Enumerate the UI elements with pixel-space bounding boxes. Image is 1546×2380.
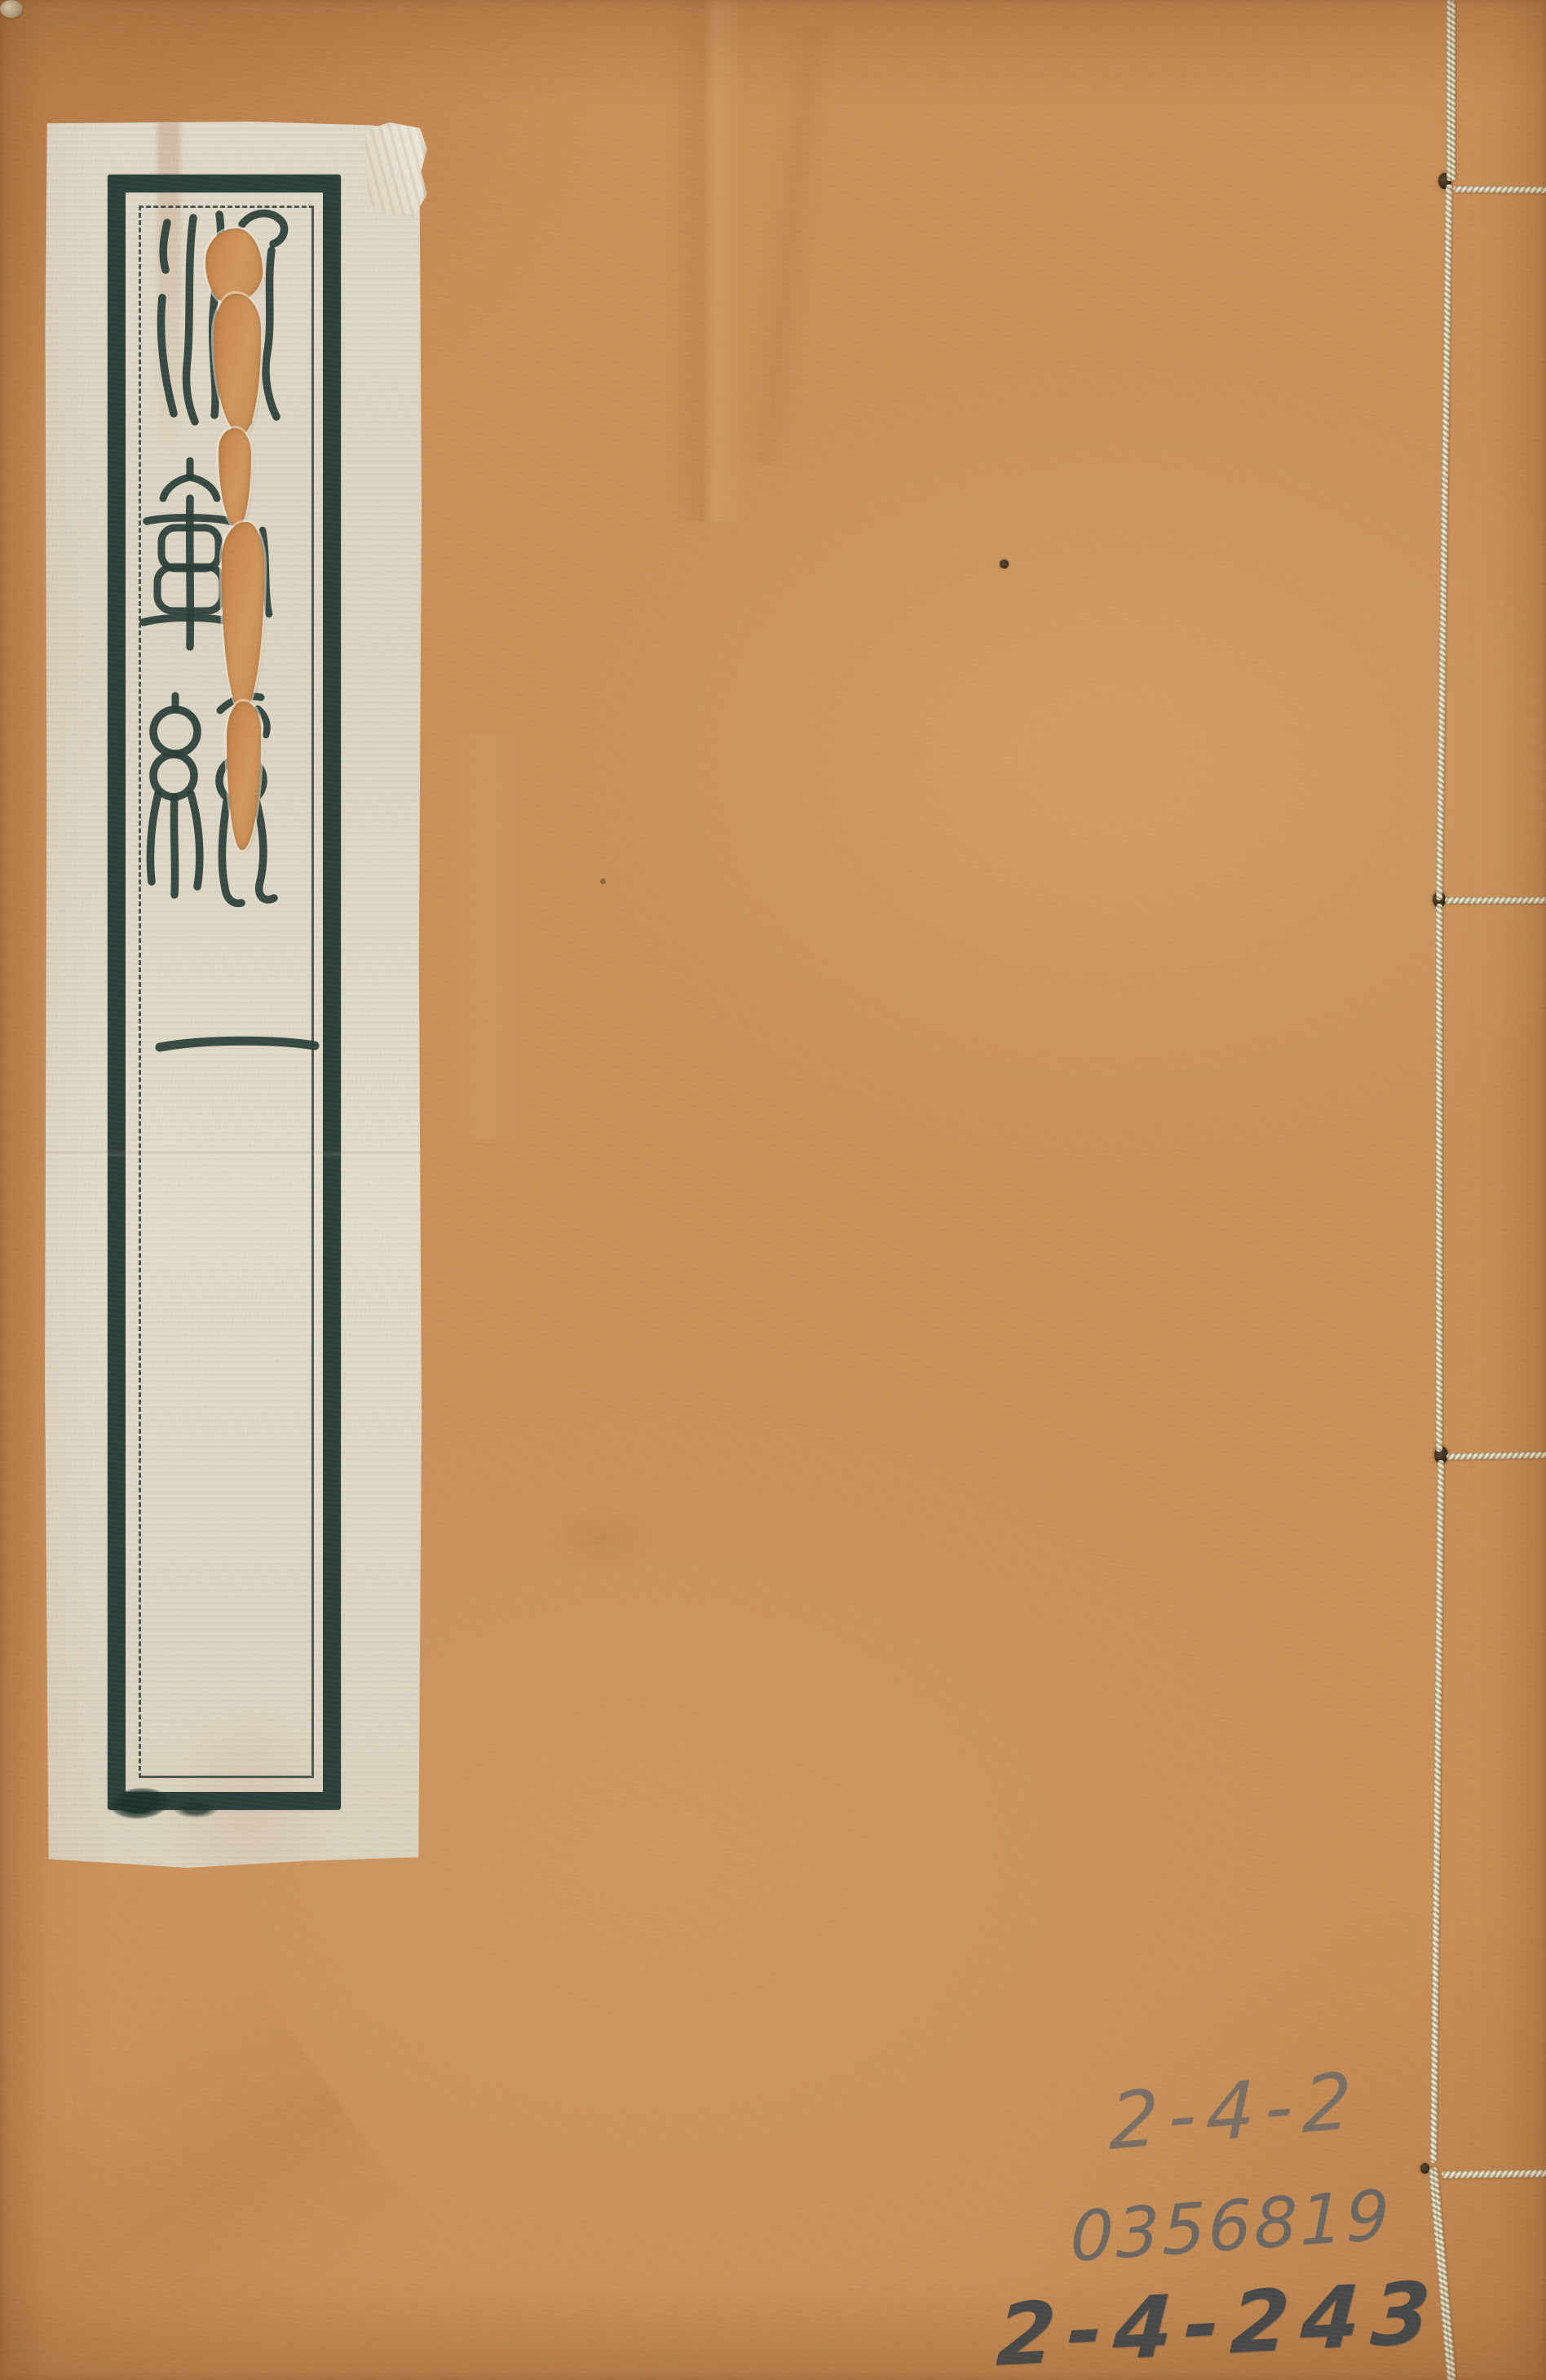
title-char-2-seal [139, 453, 289, 661]
worm-damage-blob [205, 228, 263, 303]
volume-number-stroke [153, 1029, 320, 1059]
book-cover: 2-4-2 0356819 2-4-243 [0, 0, 1546, 2380]
paper-crease [740, 23, 838, 467]
binding-thread-vertical [1430, 1460, 1444, 2163]
ink-speck [600, 878, 606, 884]
paper-crease [545, 1507, 659, 1573]
label-fold-crease [45, 1150, 422, 1157]
binding-thread-horizontal [1453, 186, 1546, 193]
ink-blot [167, 1798, 224, 1820]
label-torn-corner [365, 122, 427, 217]
title-label [45, 121, 422, 1868]
binding-thread-horizontal [1447, 1452, 1546, 1460]
pencil-annotation-line2: 0356819 [1070, 2174, 1391, 2277]
binding-thread-vertical [1436, 904, 1442, 1452]
paper-crease [667, 0, 745, 522]
binding-thread-vertical [1436, 184, 1452, 900]
paper-crease [440, 734, 530, 1142]
binding-thread-vertical [1447, 0, 1455, 181]
pencil-annotation-line1: 2-4-2 [1109, 2055, 1363, 2168]
binding-knot [0, 0, 23, 18]
binding-thread-horizontal [1445, 897, 1546, 904]
pencil-annotation-line3: 2-4-243 [994, 2262, 1444, 2380]
paper-crease [0, 1965, 430, 2380]
title-char-3-seal [145, 689, 292, 934]
binding-hole-4 [1420, 2163, 1429, 2174]
ink-speck [1000, 560, 1009, 568]
binding-thread-horizontal [1442, 2170, 1546, 2179]
